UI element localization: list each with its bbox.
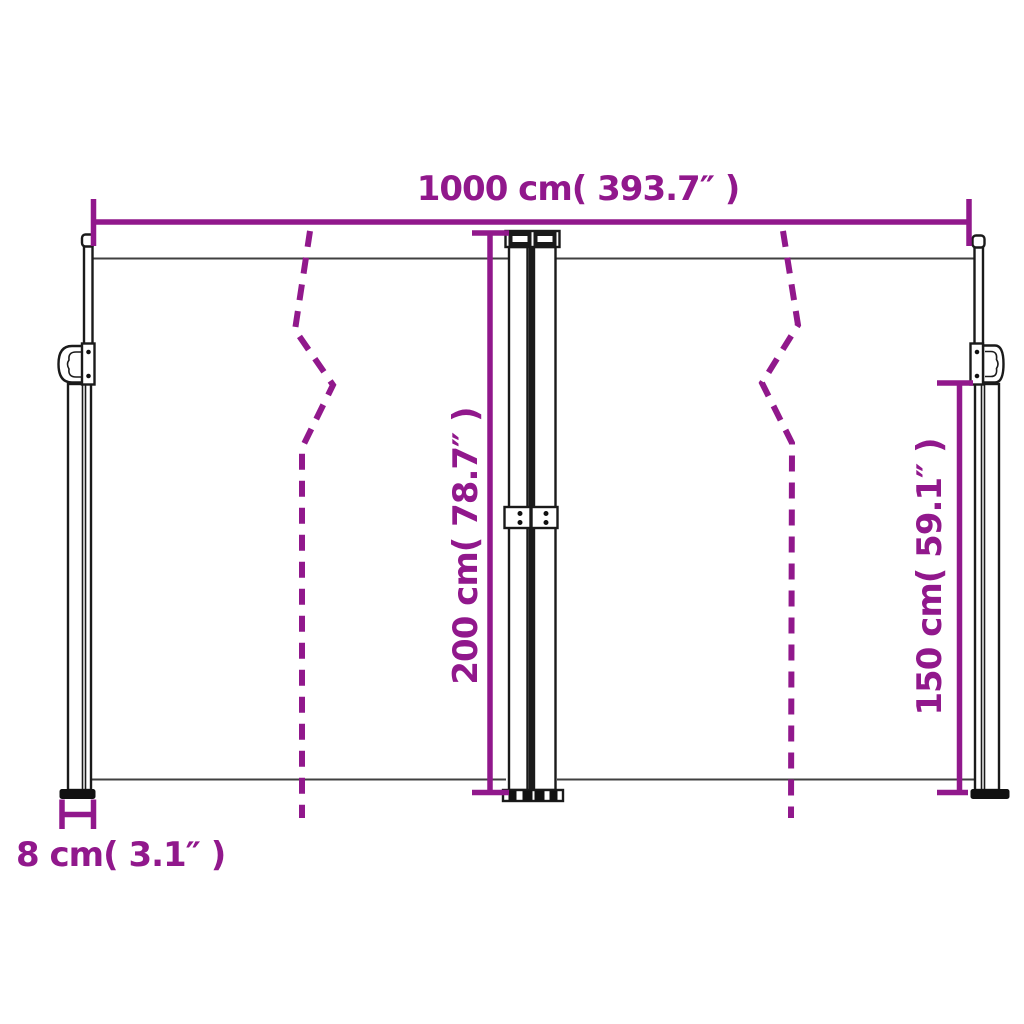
awning-diagram: 1000 cm( 393.7″ ) 200 cm( 78.7″ ) 150 cm… — [0, 0, 1024, 1024]
total-width-label: 1000 cm( 393.7″ ) — [417, 169, 740, 209]
right-pole-cap — [973, 236, 985, 248]
base-plate-mark — [523, 791, 532, 800]
left-pole — [59, 235, 96, 799]
left-bracket-plate — [82, 344, 95, 385]
mid-bracket-left — [505, 507, 531, 528]
center-post-top-cap-left-block — [511, 234, 530, 244]
right-pole-base-plate — [971, 790, 1009, 799]
left-pole-lower-tube — [68, 384, 91, 790]
right-wall-bracket — [971, 344, 1004, 385]
product-diagram-canvas: 1000 cm( 393.7″ ) 200 cm( 78.7″ ) 150 cm… — [0, 0, 1024, 1024]
total-height-label: 200 cm( 78.7″ ) — [446, 407, 486, 684]
screw-dot — [518, 521, 522, 525]
screw-dot — [87, 374, 91, 378]
right-pole-lower-tube — [975, 384, 999, 790]
right-pole — [971, 236, 1010, 799]
base-plate-mark — [535, 791, 544, 800]
dimension-lower-height: 150 cm( 59.1″ ) — [910, 383, 973, 793]
dimension-total-height: 200 cm( 78.7″ ) — [446, 233, 509, 793]
left-pole-upper-tube — [84, 245, 93, 346]
right-bracket-plate — [971, 344, 984, 385]
post-width-label: 8 cm( 3.1″ ) — [16, 835, 225, 875]
fold-line-right — [762, 231, 798, 818]
screw-dot — [975, 350, 979, 354]
mid-bracket-right — [532, 507, 558, 528]
base-plate-mark — [550, 791, 557, 800]
screw-dot — [544, 521, 548, 525]
dimension-post-width: 8 cm( 3.1″ ) — [16, 800, 225, 876]
base-plate-mark — [509, 791, 516, 800]
fold-line-left — [295, 231, 333, 818]
lower-height-label: 150 cm( 59.1″ ) — [910, 438, 950, 715]
right-pole-upper-tube — [975, 246, 984, 345]
center-post-top-cap-right-block — [536, 234, 555, 244]
screw-dot — [975, 374, 979, 378]
center-post-mid-brackets — [505, 507, 558, 528]
left-wall-bracket — [59, 344, 95, 385]
left-pole-base-plate — [60, 790, 95, 799]
screw-dot — [87, 350, 91, 354]
screw-dot — [518, 512, 522, 516]
screw-dot — [544, 512, 548, 516]
center-post — [503, 231, 563, 801]
